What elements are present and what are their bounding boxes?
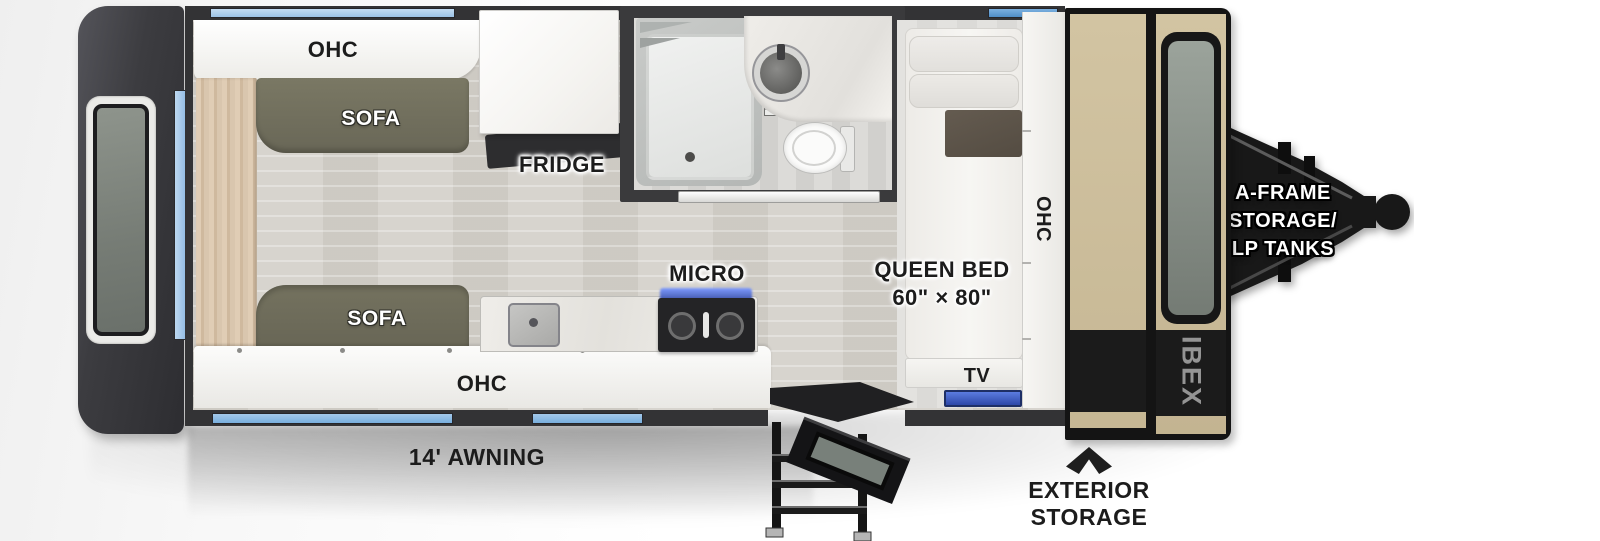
bed-pillow-1 xyxy=(909,36,1019,72)
bath-slider-door xyxy=(678,191,880,203)
exterior-storage-label-2: STORAGE xyxy=(1014,506,1164,529)
exterior-storage-label-1: EXTERIOR xyxy=(1014,479,1164,502)
window-bottom-2 xyxy=(532,413,643,424)
stove-burner-right xyxy=(716,312,744,340)
cabinet-tick xyxy=(1022,262,1031,264)
micro-label: MICRO xyxy=(647,263,767,285)
cabinet-tick xyxy=(1022,338,1031,340)
wood-table-panel xyxy=(196,78,257,346)
window-bottom-1 xyxy=(212,413,453,424)
ohc-top-label: OHC xyxy=(293,39,373,61)
queen-bed-size-label: 60" × 80" xyxy=(862,287,1022,309)
floorplan-canvas: OHC SOFA SOFA OHC MICRO FRIDGE QUEEN BED xyxy=(0,0,1600,541)
stove-handle xyxy=(703,312,709,338)
fridge-label: FRIDGE xyxy=(497,154,627,176)
front-cap-window-glass xyxy=(1168,41,1214,315)
front-cap-logo: IBEX xyxy=(1178,327,1205,417)
cabinet-knob xyxy=(237,348,242,353)
tv xyxy=(944,390,1022,407)
bed-throw-blanket xyxy=(945,110,1022,157)
awning-label: 14' AWNING xyxy=(397,446,557,469)
sofa-top-label: SOFA xyxy=(321,108,421,129)
tv-label: TV xyxy=(937,366,1017,386)
fridge xyxy=(479,10,619,134)
rear-window-glass xyxy=(93,104,149,336)
ohc-bottom-label: OHC xyxy=(442,373,522,395)
shower-floor xyxy=(646,34,754,180)
aframe-storage-label-3: LP TANKS xyxy=(1213,239,1353,259)
window-top-left xyxy=(210,8,455,18)
entry-door-steps xyxy=(742,382,924,541)
aframe-storage-label-2: STORAGE/ xyxy=(1213,211,1353,231)
bed-pillow-2 xyxy=(909,74,1019,108)
stove-burner-left xyxy=(668,312,696,340)
cabinet-knob xyxy=(340,348,345,353)
sofa-bottom-label: SOFA xyxy=(327,308,427,329)
awning-shade xyxy=(188,426,813,518)
toilet-seat xyxy=(792,130,836,166)
kitchen-faucet xyxy=(529,318,538,327)
wall-bottom-right xyxy=(905,408,1065,426)
ohc-front-label: OHC xyxy=(1033,191,1053,247)
queen-bed-label: QUEEN BED xyxy=(862,259,1022,281)
front-cap-band-1 xyxy=(1070,330,1146,412)
bath-faucet xyxy=(777,44,785,60)
shower-drain xyxy=(685,152,695,162)
cabinet-tick xyxy=(1022,130,1031,132)
cabinet-knob xyxy=(447,348,452,353)
aframe-storage-label-1: A-FRAME xyxy=(1213,183,1353,203)
